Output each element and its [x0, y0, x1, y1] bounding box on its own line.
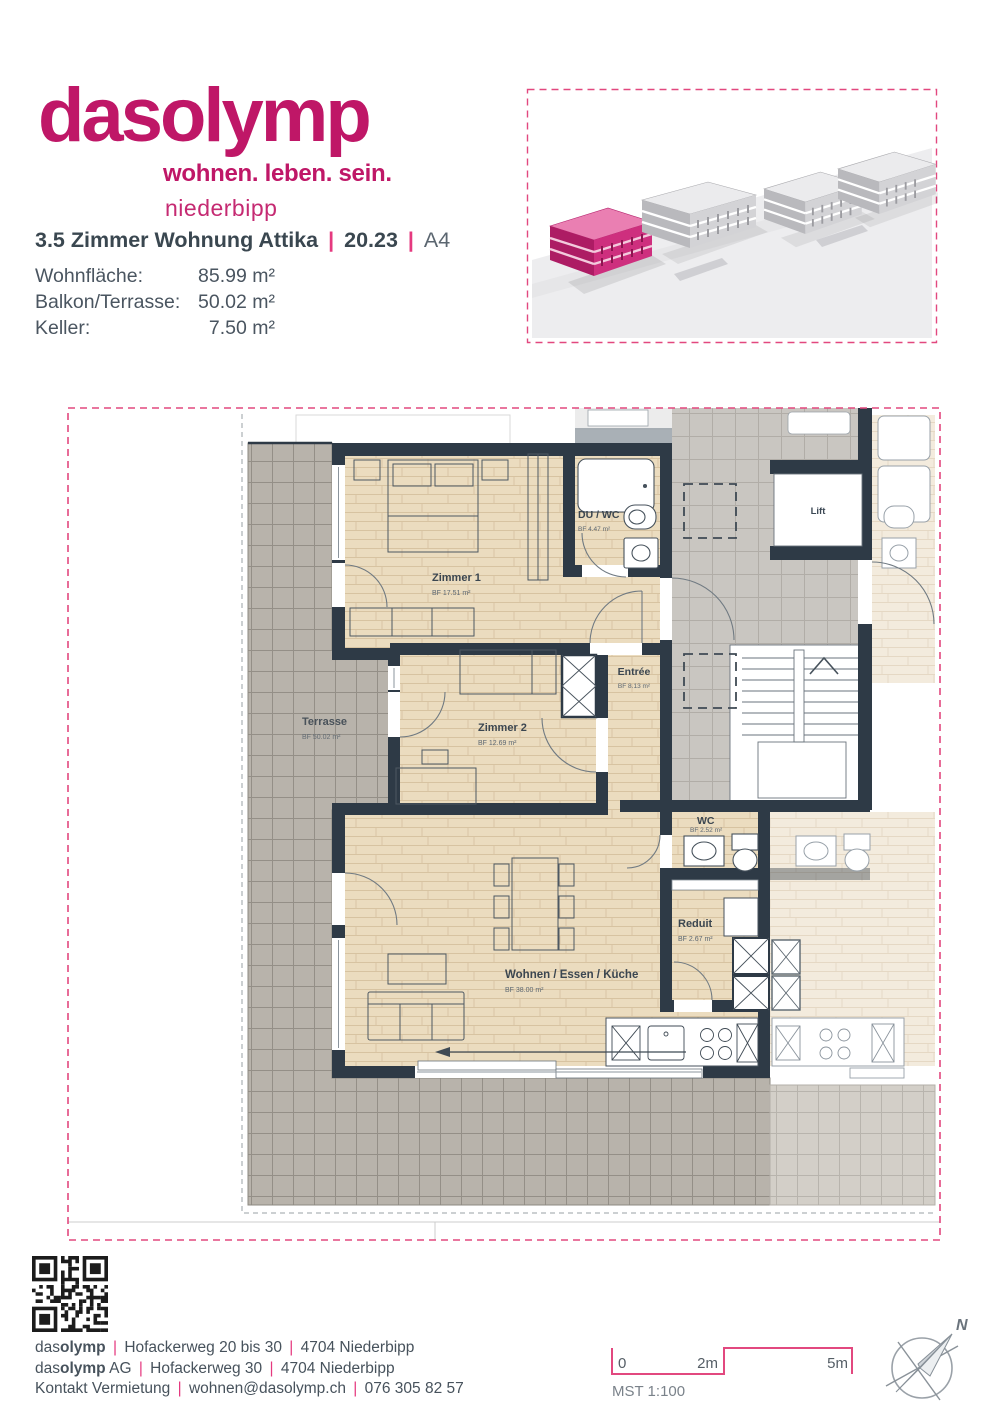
footer-line-2: dasolymp AG | Hofackerweg 30 | 4704 Nied… [35, 1359, 464, 1380]
shower [578, 459, 654, 512]
room-label-lift: Lift [811, 506, 827, 517]
footer-contact-label: Kontakt Vermietung [35, 1380, 170, 1397]
scale-tick-0: 0 [618, 1355, 626, 1372]
compass-needle [920, 1334, 952, 1376]
upper-unit-fixture [788, 412, 850, 434]
footer-email: wohnen@dasolymp.ch [189, 1380, 346, 1397]
room-area-wohnen: BF 38.00 m² [505, 987, 544, 994]
brochure-page: dasolymp wohnen. leben. sein. niederbipp… [0, 0, 1000, 1423]
brand-city: niederbipp [165, 195, 392, 222]
room-label-terrasse: Terrasse [302, 716, 347, 728]
room-label-zimmer1: Zimmer 1 [432, 572, 481, 584]
upper-unit-wall [575, 428, 672, 443]
room-area-zimmer1: BF 17.51 m² [432, 590, 471, 597]
title-unit-number: 20.23 [344, 228, 398, 252]
stairwell [730, 645, 860, 803]
footer-separator: | [267, 1360, 277, 1377]
room-label-entree: Entrée [618, 666, 651, 678]
footer-city: 4704 Niederbipp [281, 1360, 395, 1377]
north-label: N [956, 1317, 968, 1334]
footer-brand: das [35, 1360, 60, 1377]
area-label: Wohnfläche: [35, 263, 143, 289]
footer-phone: 076 305 82 57 [365, 1380, 464, 1397]
title-separator: | [324, 228, 338, 252]
footer: dasolymp | Hofackerweg 20 bis 30 | 4704 … [35, 1338, 464, 1400]
room-area-terrasse: BF 50.02 m² [302, 734, 341, 741]
room-area-entree: BF 8.13 m² [618, 683, 651, 690]
footer-brand-bold: olymp [60, 1360, 106, 1377]
footer-brand: das [35, 1339, 60, 1356]
room-label-reduit: Reduit [678, 918, 713, 930]
toilet [732, 834, 758, 850]
area-value: 7.50 m² [209, 315, 275, 341]
title-plan-code: A4 [424, 228, 450, 252]
logo-das: das [38, 73, 160, 158]
sliding-door-panel [418, 1061, 556, 1070]
area-row: Wohnfläche: 85.99 m² [35, 263, 275, 289]
title-main: 3.5 Zimmer Wohnung Attika [35, 228, 318, 252]
logo-olymp: olymp [160, 73, 369, 158]
scale-bar: 0 2m 5m MST 1:100 [606, 1342, 866, 1404]
area-value: 85.99 m² [198, 263, 275, 289]
room-label-zimmer2: Zimmer 2 [478, 722, 527, 734]
footer-street: Hofackerweg 20 bis 30 [124, 1339, 282, 1356]
qr-code [32, 1256, 108, 1332]
area-value: 50.02 m² [198, 289, 275, 315]
footer-separator: | [110, 1339, 120, 1356]
room-label-duwc: DU / WC [578, 509, 620, 521]
title-separator: | [404, 228, 418, 252]
scale-label: MST 1:100 [612, 1383, 685, 1400]
area-label: Balkon/Terrasse: [35, 289, 180, 315]
page-title: 3.5 Zimmer Wohnung Attika | 20.23 | A4 [35, 228, 455, 253]
room-label-wohnen: Wohnen / Essen / Küche [505, 969, 638, 981]
footer-city: 4704 Niederbipp [301, 1339, 415, 1356]
kitchen-counter [606, 1018, 758, 1066]
footer-separator: | [286, 1339, 296, 1356]
footer-line-1: dasolymp | Hofackerweg 20 bis 30 | 4704 … [35, 1338, 464, 1359]
room-area-duwc: BF 4.47 m² [578, 526, 611, 533]
footer-separator: | [136, 1360, 146, 1377]
room-area-wc: BF 2.52 m² [690, 827, 723, 834]
brand-logo: dasolymp wohnen. leben. sein. niederbipp [38, 78, 392, 222]
room-area-zimmer2: BF 12.69 m² [478, 740, 517, 747]
scale-tick-2m: 2m [697, 1355, 718, 1372]
room-label-wc: WC [697, 815, 715, 827]
footer-separator: | [175, 1380, 185, 1397]
floor-plan: Zimmer 1 BF 17.51 m² DU / WC BF 4.47 m² … [0, 395, 1000, 1260]
room-area-reduit: BF 2.67 m² [678, 936, 713, 943]
logo-wordmark: dasolymp [38, 78, 392, 154]
footer-separator: | [350, 1380, 360, 1397]
footer-street: Hofackerweg 30 [150, 1360, 262, 1377]
area-label: Keller: [35, 315, 90, 341]
footer-brand-bold: olymp [60, 1339, 106, 1356]
scale-tick-5m: 5m [827, 1355, 848, 1372]
site-plan-svg [526, 88, 938, 344]
site-plan-3d [526, 88, 938, 344]
footer-line-3: Kontakt Vermietung | wohnen@dasolymp.ch … [35, 1379, 464, 1400]
brand-tagline: wohnen. leben. sein. [163, 160, 392, 188]
footer-brand-suffix: AG [109, 1360, 131, 1377]
area-row: Keller: 7.50 m² [35, 315, 275, 341]
upper-unit-fixture [588, 410, 648, 426]
neighbor-terrace-floor [770, 1085, 935, 1205]
area-row: Balkon/Terrasse: 50.02 m² [35, 289, 275, 315]
compass-rose: N [876, 1310, 980, 1414]
listing-info: 3.5 Zimmer Wohnung Attika | 20.23 | A4 W… [35, 228, 455, 341]
sliding-door-panel [556, 1069, 702, 1078]
